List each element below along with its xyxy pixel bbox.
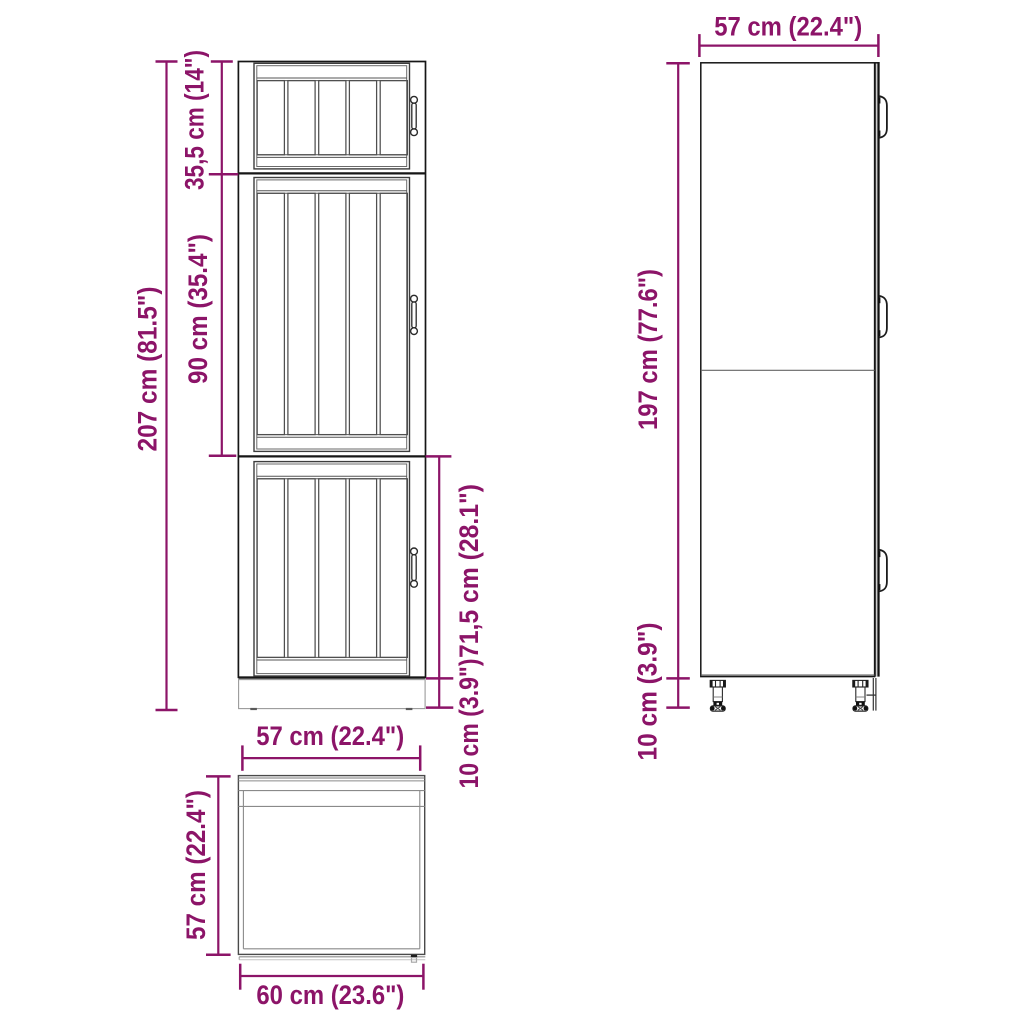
svg-text:60 cm (23.6"): 60 cm (23.6") [256, 980, 404, 1010]
svg-text:207 cm (81.5"): 207 cm (81.5") [133, 287, 163, 452]
svg-text:57 cm (22.4"): 57 cm (22.4") [714, 12, 862, 42]
svg-text:57 cm (22.4"): 57 cm (22.4") [256, 721, 404, 751]
svg-text:71,5 cm (28.1"): 71,5 cm (28.1") [454, 484, 484, 658]
svg-text:57 cm (22.4"): 57 cm (22.4") [181, 790, 211, 940]
svg-text:10 cm (3.9"): 10 cm (3.9") [454, 659, 484, 789]
svg-text:90 cm (35.4"): 90 cm (35.4") [183, 234, 213, 384]
svg-text:35,5 cm (14"): 35,5 cm (14") [180, 50, 210, 190]
svg-text:10 cm (3.9"): 10 cm (3.9") [633, 623, 663, 761]
svg-text:197 cm (77.6"): 197 cm (77.6") [633, 269, 663, 430]
